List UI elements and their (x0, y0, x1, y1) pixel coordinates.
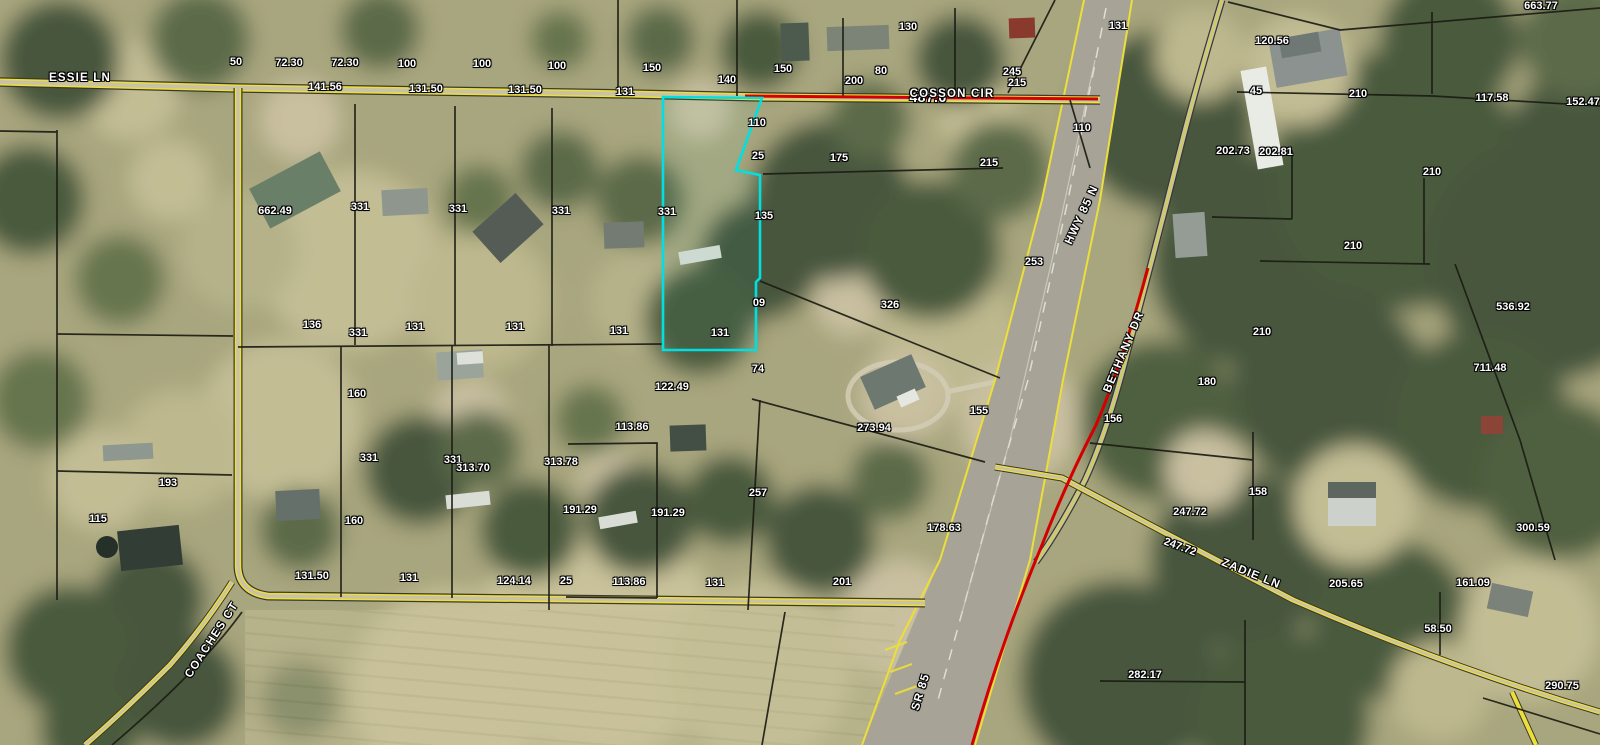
parcel-dimension-label: 210 (1253, 326, 1271, 338)
parcel-dimension-label: 113.86 (612, 576, 645, 588)
parcel-dimension-label: 80 (875, 65, 887, 77)
parcel-dimension-label: 180 (1198, 376, 1216, 388)
parcel-dimension-label: 50 (230, 56, 242, 68)
parcel-dimension-label: 257 (749, 487, 767, 499)
parcel-dimension-label: 202.81 (1259, 146, 1293, 158)
parcel-dimension-label: 253 (1025, 256, 1043, 268)
parcel-dimension-label: 331 (351, 201, 369, 213)
parcel-dimension-label: 193 (159, 477, 177, 489)
parcel-dimension-label: 74 (752, 363, 764, 375)
road-name-label: HWY 85 N (1063, 184, 1101, 247)
parcel-dimension-label: 131 (610, 325, 628, 337)
parcel-dimension-label: 300.59 (1516, 522, 1550, 534)
parcel-dimension-label: 247.72 (1162, 536, 1198, 559)
parcel-dimension-label: 210 (1344, 240, 1362, 252)
parcel-dimension-label: 155 (970, 405, 988, 417)
gis-map-viewport[interactable]: 5072.3072.301001001001501401502008013024… (0, 0, 1600, 745)
parcel-dimension-label: 160 (345, 515, 363, 527)
parcel-dimension-label: 663.77 (1524, 0, 1558, 12)
parcel-dimension-label: 290.75 (1545, 680, 1579, 692)
parcel-dimension-label: 115 (89, 513, 107, 525)
map-label-layer: 5072.3072.301001001001501401502008013024… (0, 0, 1600, 745)
parcel-dimension-label: 113.86 (615, 421, 648, 433)
parcel-dimension-label: 273.94 (857, 422, 891, 434)
parcel-dimension-label: 160 (348, 388, 366, 400)
parcel-dimension-label: 331 (349, 327, 367, 339)
parcel-dimension-label: 25 (752, 150, 764, 162)
parcel-dimension-label: 201 (833, 576, 851, 588)
parcel-dimension-label: 131 (1109, 20, 1127, 32)
parcel-dimension-label: 536.92 (1496, 301, 1530, 313)
road-name-label: BETHANY DR (1101, 310, 1146, 395)
road-name-label: ZADIE LN (1220, 557, 1283, 592)
parcel-dimension-label: 156 (1104, 413, 1122, 425)
parcel-dimension-label: 72.30 (275, 57, 303, 69)
parcel-dimension-label: 331 (658, 206, 676, 218)
parcel-dimension-label: 191.29 (651, 507, 685, 519)
road-name-label: COACHES CT (183, 600, 241, 680)
parcel-dimension-label: 331 (552, 205, 570, 217)
parcel-dimension-label: 191.29 (563, 504, 597, 516)
parcel-dimension-label: 202.73 (1216, 145, 1250, 157)
parcel-dimension-label: 158 (1249, 486, 1267, 498)
parcel-dimension-label: 124.14 (497, 575, 531, 587)
parcel-dimension-label: 58.50 (1424, 623, 1452, 635)
parcel-dimension-label: 117.58 (1475, 92, 1508, 104)
parcel-dimension-label: 141.56 (308, 81, 342, 93)
parcel-dimension-label: 150 (774, 63, 792, 75)
parcel-dimension-label: 100 (398, 58, 416, 70)
parcel-dimension-label: 331 (360, 452, 378, 464)
parcel-dimension-label: 110 (748, 117, 766, 129)
parcel-dimension-label: 45 (1250, 85, 1262, 97)
parcel-dimension-label: 175 (830, 152, 848, 164)
parcel-dimension-label: 326 (881, 299, 899, 311)
parcel-dimension-label: 178.63 (927, 522, 961, 534)
parcel-dimension-label: 313.78 (544, 456, 578, 468)
road-name-label: SR 85 (910, 672, 933, 712)
road-name-label: ESSIE LN (49, 72, 111, 84)
parcel-dimension-label: 152.47 (1566, 96, 1600, 108)
parcel-dimension-label: 140 (718, 74, 736, 86)
parcel-dimension-label: 210 (1349, 88, 1367, 100)
parcel-dimension-label: 131 (506, 321, 524, 333)
parcel-dimension-label: 200 (845, 75, 863, 87)
parcel-dimension-label: 09 (753, 297, 765, 309)
parcel-dimension-label: 711.48 (1473, 362, 1506, 374)
parcel-dimension-label: 131 (711, 327, 729, 339)
parcel-dimension-label: 136 (303, 319, 321, 331)
parcel-dimension-label: 210 (1423, 166, 1441, 178)
parcel-dimension-label: 120.56 (1255, 35, 1289, 47)
parcel-dimension-label: 205.65 (1329, 578, 1363, 590)
parcel-dimension-label: 313.70 (456, 462, 490, 474)
parcel-dimension-label: 282.17 (1128, 669, 1162, 681)
parcel-dimension-label: 135 (755, 210, 773, 222)
parcel-dimension-label: 131 (400, 572, 418, 584)
parcel-dimension-label: 122.49 (655, 381, 689, 393)
parcel-dimension-label: 100 (473, 58, 491, 70)
parcel-dimension-label: 110 (1073, 122, 1091, 134)
parcel-dimension-label: 100 (548, 60, 566, 72)
parcel-dimension-label: 131 (616, 86, 634, 98)
parcel-dimension-label: 150 (643, 62, 661, 74)
parcel-dimension-label: 25 (560, 575, 572, 587)
parcel-dimension-label: 72.30 (331, 57, 359, 69)
parcel-dimension-label: 662.49 (258, 205, 292, 217)
road-name-label: COSSON CIR (910, 88, 995, 100)
parcel-dimension-label: 131.50 (295, 570, 329, 582)
parcel-dimension-label: 131.50 (508, 84, 542, 96)
parcel-dimension-label: 247.72 (1173, 506, 1207, 518)
parcel-dimension-label: 215 (980, 157, 998, 169)
parcel-dimension-label: 131.50 (409, 83, 443, 95)
parcel-dimension-label: 131 (406, 321, 424, 333)
parcel-dimension-label: 331 (449, 203, 467, 215)
parcel-dimension-label: 130 (899, 21, 917, 33)
parcel-dimension-label: 131 (706, 577, 724, 589)
parcel-dimension-label: 215 (1008, 77, 1026, 89)
parcel-dimension-label: 161.09 (1456, 577, 1490, 589)
